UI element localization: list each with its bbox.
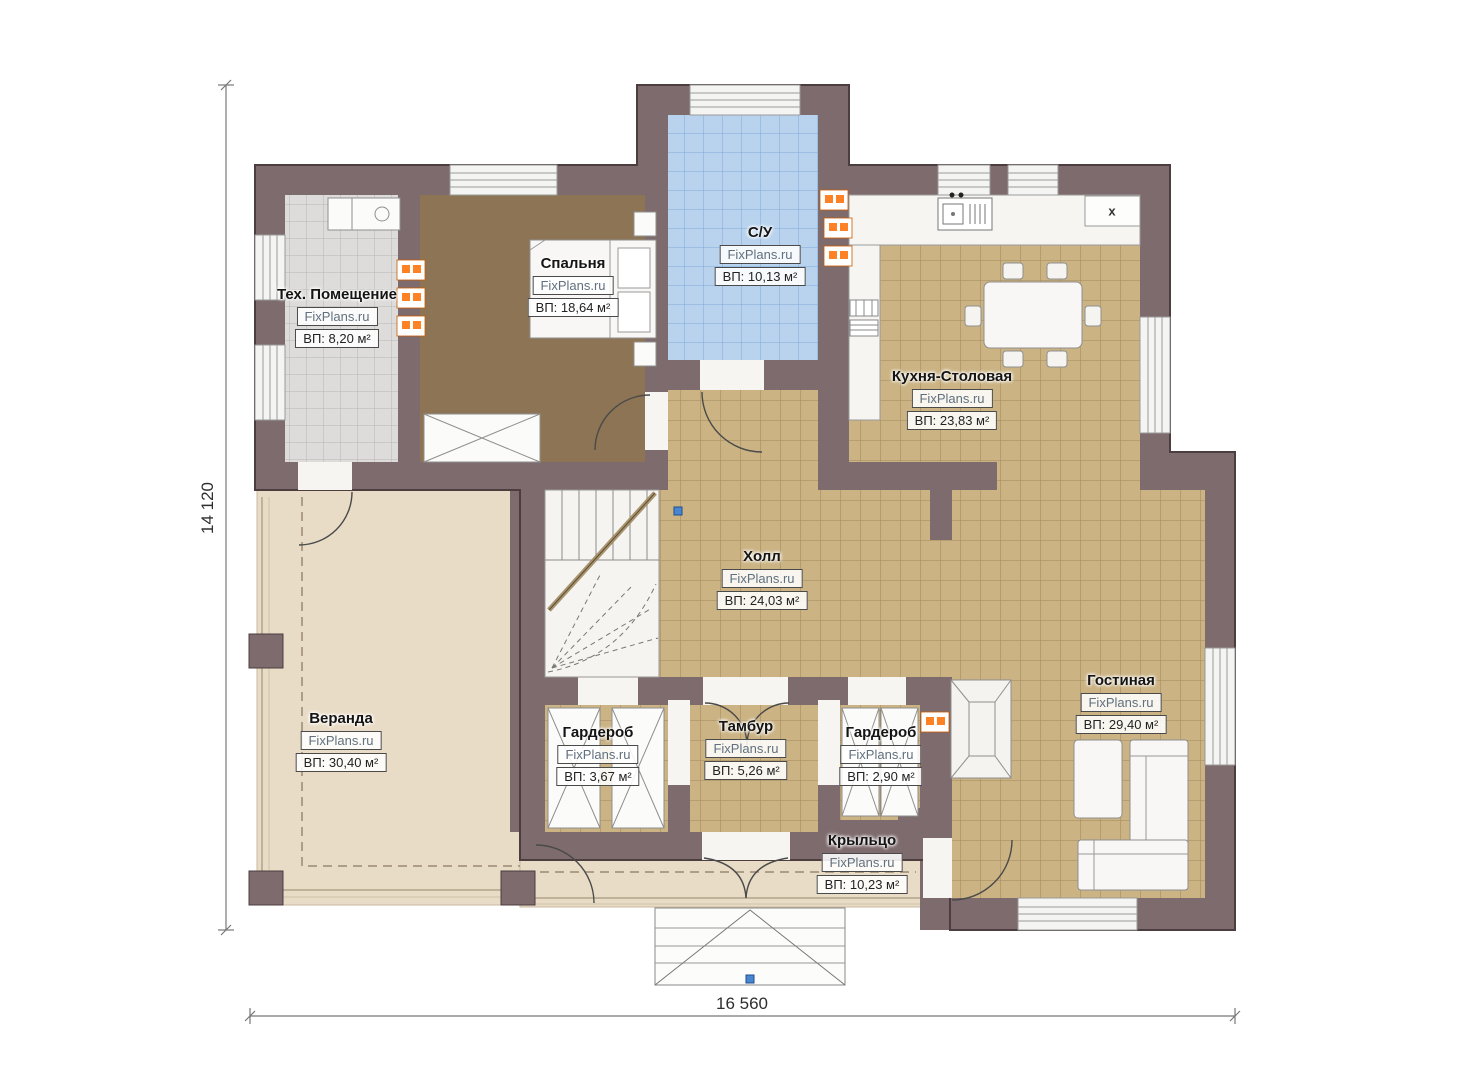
boiler-unit	[328, 198, 400, 230]
radiator	[820, 190, 848, 210]
floor-tech	[285, 195, 398, 462]
floor-tambour	[690, 705, 818, 833]
floor-corridor	[668, 390, 818, 490]
chair	[1047, 351, 1067, 367]
cooktop-symbol: x	[1108, 204, 1115, 219]
floor-bathroom	[668, 115, 818, 360]
veranda-deck	[257, 470, 520, 905]
nightstand	[634, 212, 656, 236]
window-tech-left-2	[255, 345, 285, 420]
window-bathroom-top	[690, 85, 800, 115]
window-living-bottom	[1018, 898, 1137, 930]
window-bedroom-top	[450, 165, 557, 195]
window-kitchen-top-2	[1008, 165, 1058, 195]
chair	[1085, 306, 1101, 326]
entrance-steps	[655, 908, 845, 985]
window-living-right	[1205, 648, 1235, 765]
radiator	[921, 712, 949, 732]
radiator	[397, 288, 425, 308]
window-kitchen-right	[1140, 317, 1170, 433]
marker-dot	[674, 507, 682, 515]
chair	[965, 306, 981, 326]
marker-dot	[746, 975, 754, 983]
fireplace	[951, 680, 1011, 778]
chair	[1003, 351, 1023, 367]
chair	[1047, 263, 1067, 279]
window-kitchen-top-1	[938, 165, 990, 195]
dimension-height: 14 120	[198, 482, 218, 534]
bedroom-wardrobe	[424, 414, 540, 462]
dimension-width: 16 560	[716, 994, 768, 1014]
chair	[1003, 263, 1023, 279]
radiator	[397, 316, 425, 336]
nightstand	[634, 342, 656, 366]
window-tech-left-1	[255, 235, 285, 300]
radiator	[397, 260, 425, 280]
coffee-table	[1074, 740, 1122, 818]
floor-plan: Тех. Помещение FixPlans.ru ВП: 8,20 м² С…	[0, 0, 1474, 1080]
radiator	[824, 218, 852, 238]
radiator	[824, 246, 852, 266]
floor-plan-drawing	[0, 0, 1474, 1080]
kitchen-sink	[938, 193, 992, 231]
